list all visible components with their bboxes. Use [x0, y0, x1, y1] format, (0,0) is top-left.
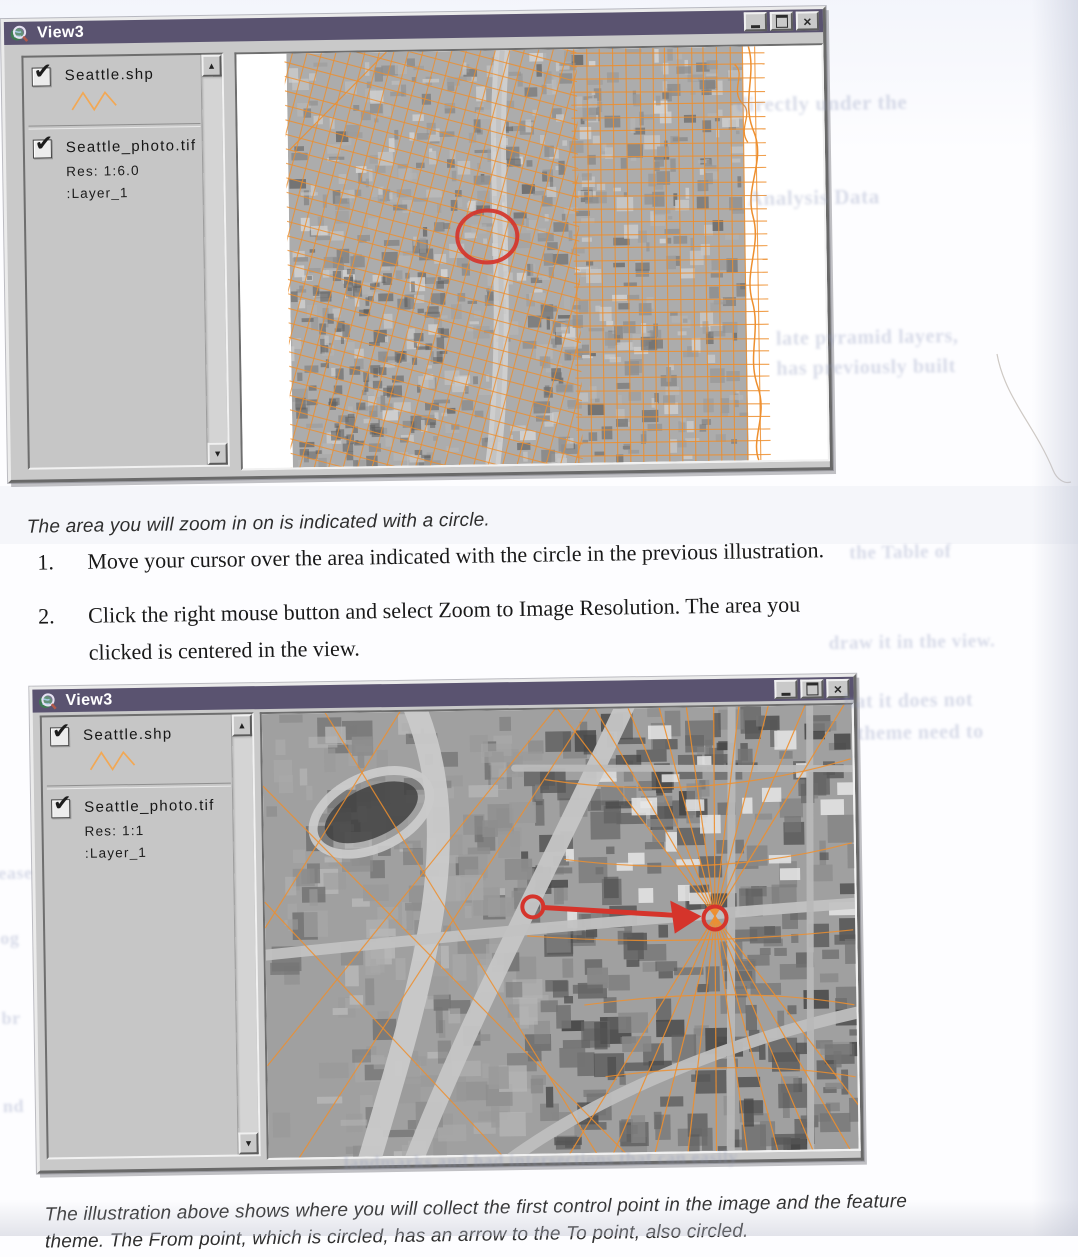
view3-window-overview: View3 × ✔ Seattle.shp: [1, 6, 833, 483]
step-2: 2. Click the right mouse button and sele…: [38, 582, 1029, 672]
legend-item-seattle-photo[interactable]: ✔ Seattle_photo.tif Res: 1:6.0 :Layer_1: [25, 127, 224, 203]
layer-sublayer: :Layer_1: [85, 843, 216, 860]
scroll-up-button[interactable]: ▲: [201, 55, 221, 77]
check-icon: ✔: [53, 791, 72, 816]
layer-name: Seattle.shp: [83, 725, 173, 744]
checkbox-checked[interactable]: ✔: [50, 727, 69, 746]
line-symbol: [71, 89, 119, 112]
table-of-contents-panel: ✔ Seattle.shp ✔ Seattle_photo.tif Res: 1…: [21, 53, 229, 470]
scrollbar-track[interactable]: [202, 77, 228, 443]
bleedthrough-text: ease: [0, 863, 33, 885]
minimize-button[interactable]: [744, 12, 767, 31]
map-view-zoomed[interactable]: [260, 703, 861, 1160]
figure-caption-bottom: The illustration above shows where you w…: [44, 1187, 1065, 1257]
maximize-button[interactable]: [800, 679, 823, 698]
view-icon: [37, 692, 56, 710]
table-of-contents-panel: ✔ Seattle.shp ✔ Seattle_photo.tif Res: 1…: [40, 712, 261, 1159]
check-icon: ✔: [52, 719, 71, 744]
scanned-page: View3 × ✔ Seattle.shp: [0, 0, 1078, 1244]
layer-name: Seattle_photo.tif: [66, 137, 197, 156]
checkbox-checked[interactable]: ✔: [32, 67, 51, 86]
maximize-button[interactable]: [770, 12, 793, 31]
bleedthrough-layer: directly under theAnalysis Datalate pyra…: [0, 0, 1069, 8]
scroll-up-button[interactable]: ▲: [232, 714, 252, 736]
legend-item-seattle-shp[interactable]: ✔ Seattle.shp: [42, 714, 253, 780]
check-icon: ✔: [33, 59, 52, 84]
scroll-down-button[interactable]: ▼: [207, 443, 227, 465]
window-title: View3: [65, 691, 112, 710]
maximize-icon: [775, 15, 787, 28]
window-title: View3: [37, 23, 84, 42]
close-button[interactable]: ×: [826, 679, 849, 698]
checkbox-checked[interactable]: ✔: [51, 799, 70, 818]
step-number: 2.: [38, 597, 89, 673]
bleedthrough-text: theme need to: [857, 721, 984, 746]
bleedthrough-text: nd: [3, 1096, 25, 1117]
bleedthrough-text: hat it does not: [843, 689, 973, 714]
bleedthrough-text: og: [0, 928, 20, 949]
close-button[interactable]: ×: [796, 11, 819, 30]
legend-item-seattle-photo[interactable]: ✔ Seattle_photo.tif Res: 1:1 :Layer_1: [43, 786, 254, 863]
minimize-button[interactable]: [774, 680, 797, 699]
legend-scrollbar[interactable]: ▲ ▼: [231, 714, 259, 1154]
legend-scrollbar[interactable]: ▲ ▼: [200, 55, 227, 465]
view3-window-zoomed: View3 × ✔ Seattle.shp: [29, 674, 864, 1174]
map-view-overview[interactable]: [234, 43, 829, 470]
minimize-icon: [781, 692, 790, 695]
minimize-icon: [751, 25, 760, 28]
layer-resolution: Res: 1:1: [84, 821, 215, 838]
legend-item-seattle-shp[interactable]: ✔ Seattle.shp: [23, 55, 222, 120]
layer-resolution: Res: 1:6.0: [66, 162, 197, 179]
scrollbar-track[interactable]: [232, 736, 258, 1132]
step-number: 1.: [37, 543, 88, 581]
checkbox-checked[interactable]: ✔: [33, 140, 52, 159]
maximize-icon: [806, 682, 818, 695]
bleedthrough-text: br: [1, 1008, 21, 1029]
line-symbol: [89, 749, 137, 772]
layer-name: Seattle.shp: [65, 66, 155, 85]
step-text: Move your cursor over the area indicated…: [87, 537, 824, 574]
check-icon: ✔: [35, 132, 54, 157]
layer-sublayer: :Layer_1: [66, 184, 197, 201]
scroll-down-button[interactable]: ▼: [238, 1132, 258, 1154]
view-icon: [9, 24, 28, 42]
layer-name: Seattle_photo.tif: [84, 797, 215, 816]
